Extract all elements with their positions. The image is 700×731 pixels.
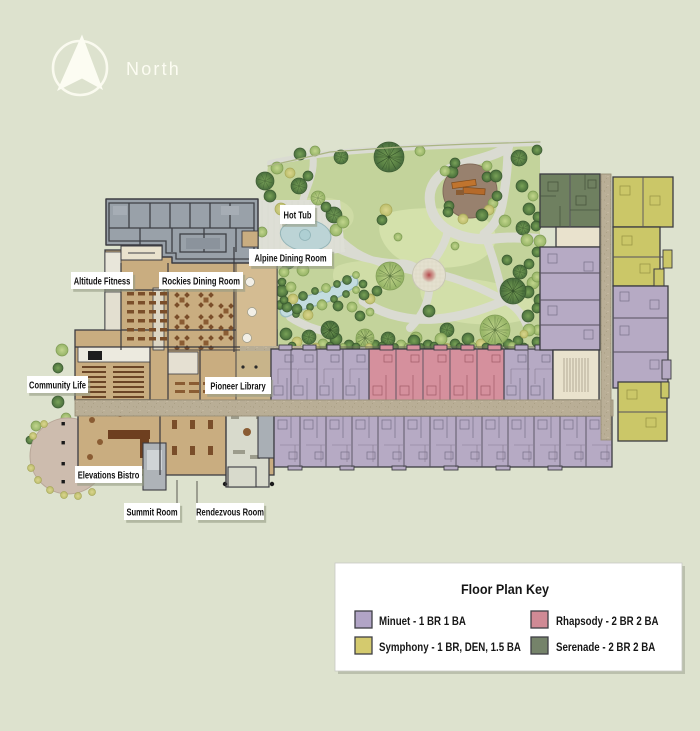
svg-text:Serenade - 2 BR 2 BA: Serenade - 2 BR 2 BA <box>556 641 655 654</box>
svg-text:Pioneer Library: Pioneer Library <box>210 380 266 391</box>
svg-text:Hot Tub: Hot Tub <box>284 209 312 220</box>
svg-text:Minuet - 1 BR 1 BA: Minuet - 1 BR 1 BA <box>379 615 466 628</box>
svg-text:Rendezvous Room: Rendezvous Room <box>196 506 264 517</box>
svg-text:Summit Room: Summit Room <box>126 506 177 517</box>
svg-text:Floor Plan Key: Floor Plan Key <box>461 581 550 597</box>
svg-text:Altitude Fitness: Altitude Fitness <box>74 275 131 286</box>
svg-text:Elevations Bistro: Elevations Bistro <box>78 469 140 480</box>
svg-text:Symphony - 1 BR, DEN, 1.5 BA: Symphony - 1 BR, DEN, 1.5 BA <box>379 641 521 654</box>
svg-text:Rhapsody - 2 BR 2 BA: Rhapsody - 2 BR 2 BA <box>556 615 659 628</box>
svg-text:Community Life: Community Life <box>29 379 86 390</box>
svg-text:Rockies Dining Room: Rockies Dining Room <box>162 275 240 286</box>
svg-text:North: North <box>126 59 181 79</box>
svg-text:Alpine Dining Room: Alpine Dining Room <box>254 252 326 263</box>
